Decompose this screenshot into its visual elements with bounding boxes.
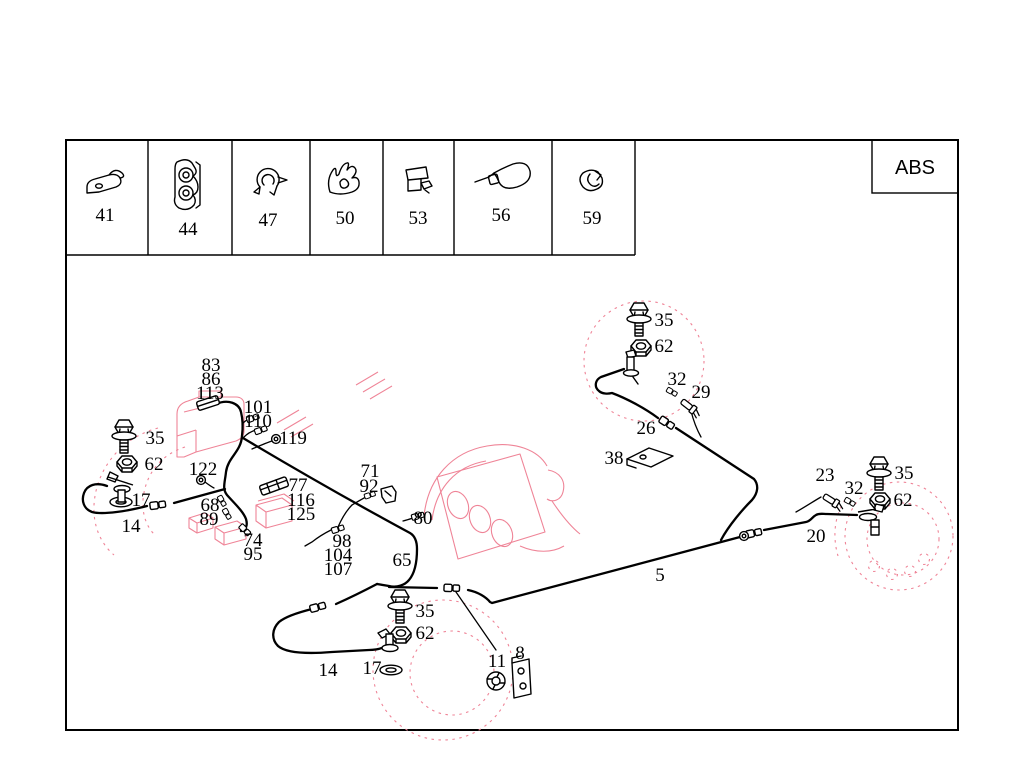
bracket-clip-icon	[406, 167, 432, 193]
callout-122: 122	[189, 459, 218, 480]
bolt-35-icon	[388, 590, 412, 623]
nut-62-icon	[117, 456, 137, 472]
part-icons	[107, 303, 891, 698]
callout-56: 56	[492, 205, 511, 226]
hose-clamp-icon	[580, 170, 602, 190]
callout-17: 17	[363, 658, 382, 679]
callout-32: 32	[668, 369, 687, 390]
callout-53: 53	[409, 208, 428, 229]
banjo-front-left	[107, 472, 133, 502]
rear-right-drum-ghost-inner	[867, 503, 939, 575]
fitting-89	[222, 508, 232, 520]
bolt-35-icon	[112, 420, 136, 453]
callout-20: 20	[807, 526, 826, 547]
connector-77-icon	[259, 477, 289, 496]
nut-11-icon	[487, 672, 505, 690]
legend-dividers	[148, 140, 635, 255]
drum-bolt-hole-ghost	[869, 561, 880, 572]
abs-label: ABS	[895, 157, 935, 179]
panel-ghost	[437, 454, 545, 559]
callout-41: 41	[96, 205, 115, 226]
callout-23: 23	[816, 465, 835, 486]
callout-35: 35	[416, 601, 435, 622]
callout-125: 125	[287, 504, 316, 525]
callout-62: 62	[416, 623, 435, 644]
callout-26: 26	[637, 418, 656, 439]
bracket-38-icon	[627, 448, 673, 468]
callout-62: 62	[894, 490, 913, 511]
callout-119: 119	[279, 428, 307, 449]
abs-outlet-line	[216, 402, 243, 436]
union-fitting	[444, 584, 460, 592]
bolt-35-icon	[867, 457, 891, 490]
callout-5: 5	[655, 565, 665, 586]
callout-65: 65	[393, 550, 412, 571]
front-loop-link	[336, 584, 377, 604]
rear-left-line-26	[676, 428, 757, 540]
callout-14: 14	[122, 516, 142, 537]
callout-59: 59	[583, 208, 602, 229]
union-fitting	[150, 500, 166, 509]
callout-95: 95	[244, 544, 263, 565]
callout-8: 8	[515, 643, 525, 664]
cable-tie-icon	[475, 163, 530, 188]
callout-32: 32	[845, 478, 864, 499]
panel-hole-ghost	[487, 516, 516, 549]
callout-62: 62	[145, 454, 164, 475]
legend-icons	[87, 160, 602, 210]
callout-14: 14	[319, 660, 339, 681]
frame: ABS	[66, 140, 958, 730]
union-fitting	[309, 602, 326, 613]
round-clip-icon	[254, 169, 287, 195]
callout-35: 35	[655, 310, 674, 331]
callout-35: 35	[146, 428, 165, 449]
callout-47: 47	[259, 210, 278, 231]
callout-80: 80	[414, 508, 433, 529]
callout-29: 29	[692, 382, 711, 403]
callout-62: 62	[655, 336, 674, 357]
washer-17-icon	[380, 665, 402, 675]
callout-110: 110	[244, 411, 272, 432]
nut-62-icon	[391, 627, 411, 643]
banjo-rear-left	[624, 350, 639, 384]
sensor-23-icon	[822, 492, 846, 511]
diagram-canvas: ABS	[0, 0, 1024, 781]
outer-border	[66, 140, 958, 730]
ring-terminal-5	[740, 532, 749, 541]
parts-diagram-page: ABS	[0, 0, 1024, 781]
callout-44: 44	[179, 219, 199, 240]
callout-11: 11	[488, 651, 506, 672]
union-fitting	[658, 416, 675, 430]
panel-hole-ghost	[465, 502, 494, 535]
callout-113: 113	[196, 383, 224, 404]
banjo-rear-right	[858, 504, 884, 535]
strap-clip-icon	[87, 170, 124, 193]
callout-17: 17	[132, 490, 151, 511]
sensor-wire-23	[796, 497, 821, 512]
callout-92: 92	[360, 476, 379, 497]
drum-bolt-hole-ghost	[919, 554, 930, 565]
callout-50: 50	[336, 208, 355, 229]
front-brake-hose-loop	[273, 609, 390, 653]
bolt-35-icon	[627, 303, 651, 336]
panel-hole-ghost	[443, 488, 472, 521]
double-pipe-clamp-icon	[175, 160, 201, 210]
callout-89: 89	[200, 509, 219, 530]
spring-clip-icon	[329, 163, 360, 194]
stub-122	[205, 482, 214, 488]
callout-35: 35	[895, 463, 914, 484]
callout-38: 38	[605, 448, 624, 469]
callout-labels: 4144475053565983861131011101193562122171…	[96, 205, 914, 681]
rear-right-arch-ghost	[835, 500, 845, 556]
callout-107: 107	[324, 559, 353, 580]
rear-line-5	[389, 537, 740, 603]
